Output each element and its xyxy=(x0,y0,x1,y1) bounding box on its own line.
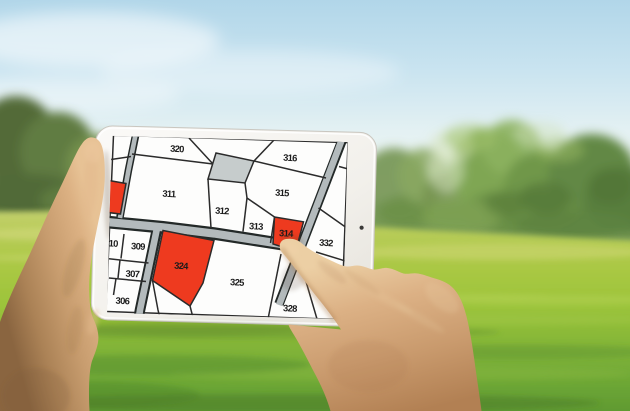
svg-text:306: 306 xyxy=(115,295,130,307)
svg-text:316: 316 xyxy=(283,152,298,164)
svg-text:320: 320 xyxy=(170,143,185,155)
svg-text:307: 307 xyxy=(125,268,140,280)
svg-text:313: 313 xyxy=(249,220,264,232)
svg-text:312: 312 xyxy=(215,205,230,217)
svg-text:311: 311 xyxy=(162,188,176,200)
svg-text:315: 315 xyxy=(275,187,290,199)
svg-text:324: 324 xyxy=(174,260,190,272)
svg-text:332: 332 xyxy=(319,237,334,249)
svg-text:309: 309 xyxy=(131,240,146,252)
svg-text:328: 328 xyxy=(283,302,298,314)
svg-text:325: 325 xyxy=(230,276,245,288)
